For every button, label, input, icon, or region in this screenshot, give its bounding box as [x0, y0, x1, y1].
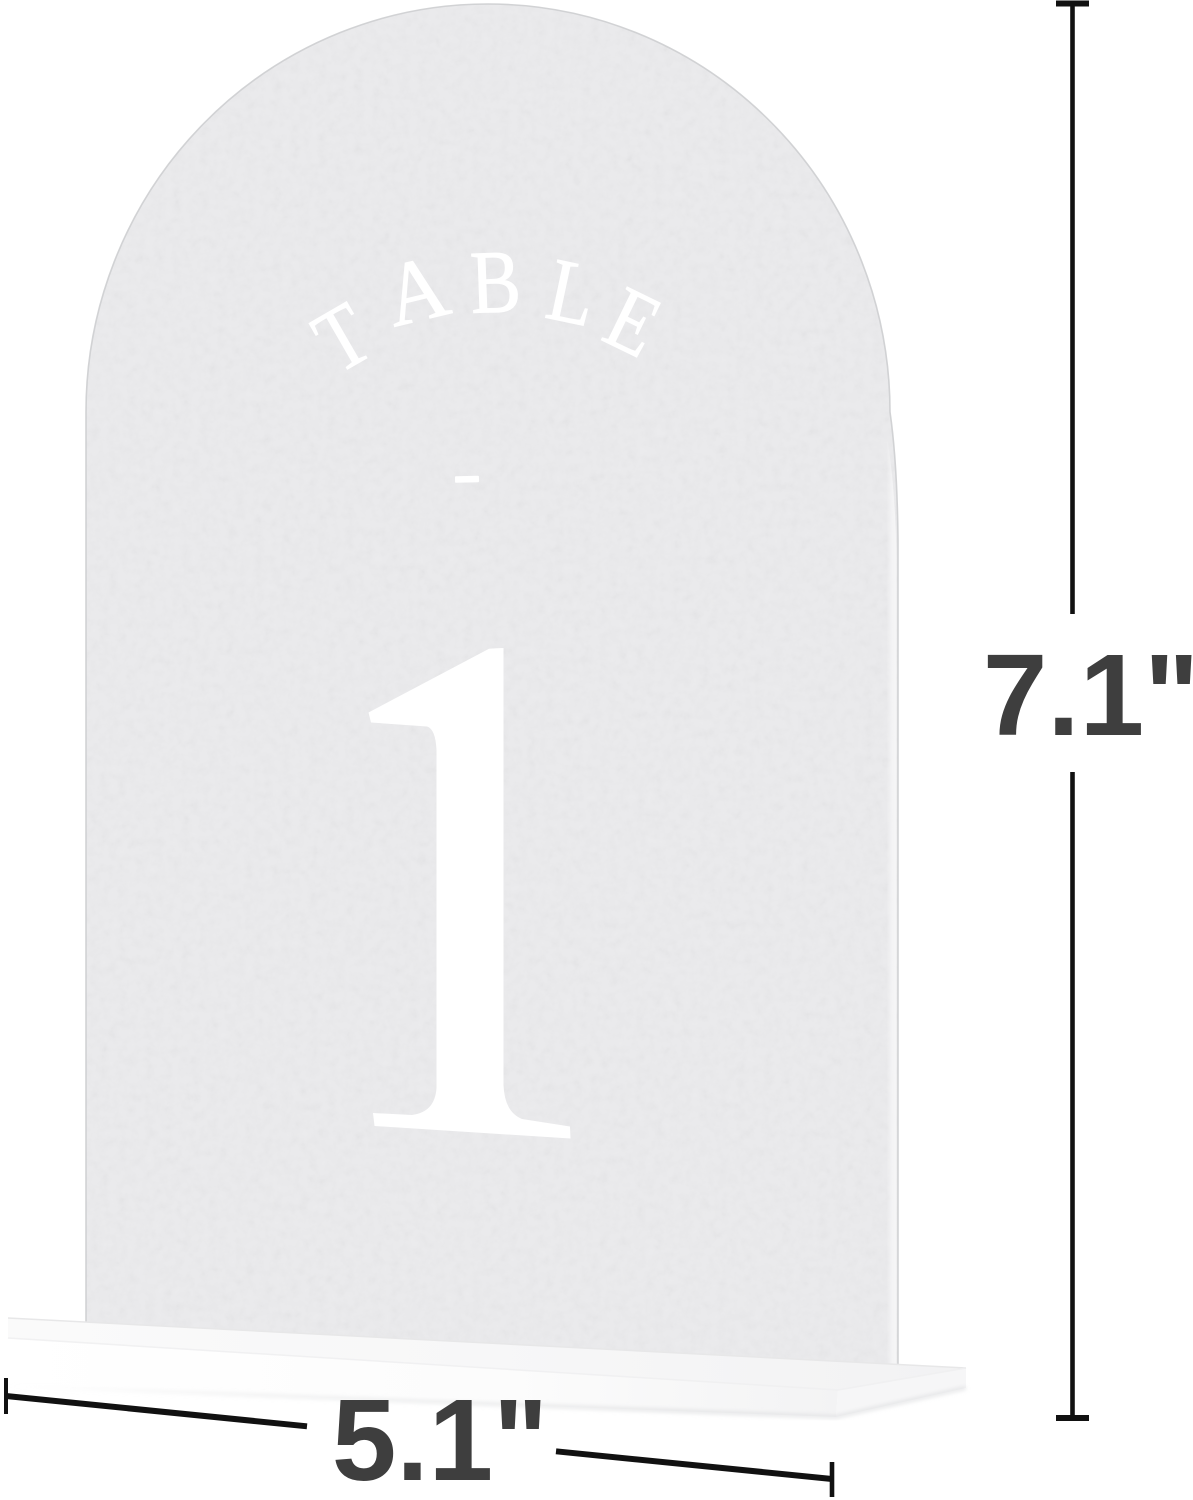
svg-text:7.1": 7.1" — [983, 630, 1193, 760]
svg-text:5.1": 5.1" — [332, 1375, 548, 1500]
svg-text:B: B — [469, 231, 523, 332]
